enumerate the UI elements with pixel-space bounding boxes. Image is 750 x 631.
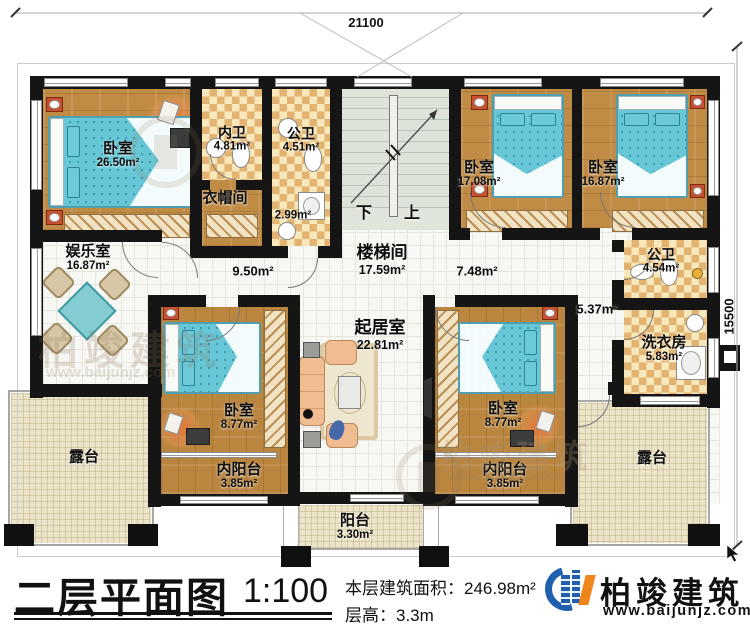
stair-rail [389, 95, 398, 217]
bed [616, 94, 688, 198]
stair-up-label: 上 [404, 205, 420, 223]
nightstand [46, 97, 63, 112]
window [44, 78, 128, 87]
room-label-balcony: 阳台 3.30m² [337, 512, 373, 542]
window [275, 78, 327, 87]
armchair [325, 340, 357, 365]
window [600, 78, 684, 87]
wall [30, 230, 162, 242]
room-label-terrace-left: 露台 [69, 448, 99, 465]
end-table [303, 342, 320, 358]
wall [565, 382, 578, 395]
room-label-public-bath-right: 公卫 4.54m² [643, 246, 679, 275]
pier [4, 524, 34, 546]
hall-right-area: 7.48m² [456, 265, 497, 280]
bed [458, 322, 556, 394]
wall [30, 384, 162, 397]
bed [492, 94, 564, 198]
inner-balcony-window-right [435, 452, 557, 458]
room-label-inner-balcony-left: 内阳台 3.85m² [216, 461, 261, 491]
wall [502, 228, 579, 240]
drawing-scale: 1:100 [243, 572, 328, 611]
hall-left-area: 9.50m² [232, 265, 273, 280]
sink [278, 222, 296, 240]
tv [186, 428, 210, 445]
hall-small-area: 5.37m² [576, 303, 617, 318]
wall [624, 298, 720, 310]
camera-tripod-icon [170, 128, 190, 148]
terrace-left-parapet [8, 390, 154, 546]
sink [686, 314, 704, 332]
pier [128, 524, 158, 546]
pier [556, 524, 588, 546]
logo-building-bar [561, 575, 570, 605]
wall [318, 246, 342, 258]
area-label-cloakroom: 2.99m² [275, 209, 311, 222]
room-label-bedroom-bl: 卧室 8.77m² [221, 402, 257, 432]
wall [612, 240, 624, 252]
window [354, 78, 412, 87]
nightstand [690, 184, 705, 198]
end-table [303, 431, 321, 448]
pier [688, 524, 720, 546]
nightstand [46, 210, 63, 225]
floor-height-line: 层高：3.3m [345, 601, 434, 626]
brand-logo-icon [545, 563, 599, 619]
floor-height-value: 3.3m [396, 606, 434, 625]
nightstand [163, 306, 179, 320]
flue-hole [724, 351, 736, 363]
brand-website[interactable]: www.baijunjz.com [603, 603, 750, 619]
wall [190, 246, 288, 258]
wall [579, 228, 600, 240]
floor-drain [692, 268, 703, 279]
nightstand [542, 306, 558, 320]
closet [206, 214, 258, 238]
floor-height-label: 层高： [345, 606, 396, 625]
room-label-terrace-right: 露台 [637, 449, 667, 466]
wall [161, 295, 206, 307]
nightstand [471, 95, 488, 110]
room-label-bedroom-tr: 卧室 16.87m² [582, 159, 625, 189]
window [215, 78, 259, 87]
floor-area-line: 本层建筑面积：246.98m² [345, 574, 536, 599]
window [180, 496, 268, 504]
window [708, 338, 719, 378]
wall [455, 295, 565, 307]
room-label-bedroom-br: 卧室 8.77m² [485, 400, 521, 430]
room-label-stairwell: 楼梯间 17.59m² [357, 243, 408, 277]
title-underline [14, 618, 332, 620]
room-label-laundry: 洗衣房 5.83m² [641, 334, 686, 364]
wall [572, 89, 582, 240]
wall [262, 89, 272, 258]
room-label-living: 起居室 22.81m² [355, 318, 406, 352]
stool [303, 409, 313, 419]
wall [148, 295, 161, 507]
wall [632, 228, 720, 240]
tv [510, 430, 534, 447]
stair-down-label: 下 [356, 205, 372, 223]
floor-plan-page: 卧室 26.50m² 内卫 4.81m² 公卫 4.51m² 衣帽间 2.99m… [0, 0, 750, 631]
room-label-bedroom-tl: 卧室 26.50m² [97, 140, 140, 170]
wall [190, 89, 202, 258]
window [455, 496, 539, 504]
dimension-right-value: 15500 [722, 292, 737, 342]
nightstand [690, 95, 705, 109]
pier [419, 546, 449, 567]
mouse-cursor [726, 544, 742, 564]
window [640, 396, 700, 405]
window [708, 100, 719, 196]
window [464, 78, 542, 87]
coffee-table [338, 376, 361, 409]
pier [281, 546, 311, 567]
closet [264, 310, 286, 448]
wall-tv [424, 377, 432, 419]
room-label-bedroom-tc: 卧室 17.08m² [458, 159, 501, 189]
balcony-edge [299, 548, 423, 550]
wall [330, 89, 342, 258]
inner-balcony-window-left [161, 452, 277, 458]
dimension-top-value: 21100 [336, 15, 396, 30]
wall [608, 382, 622, 395]
window [31, 248, 42, 336]
room-label-inner-balcony-right: 内阳台 3.85m² [482, 461, 527, 491]
drawing-title: 二层平面图 [14, 564, 229, 624]
title-underline [14, 612, 332, 615]
window [165, 78, 191, 87]
window [31, 100, 42, 190]
floor-area-label: 本层建筑面积： [345, 579, 464, 598]
wall [238, 295, 300, 307]
wall [288, 295, 300, 505]
room-label-entertainment: 娱乐室 16.87m² [65, 243, 110, 273]
window [708, 247, 719, 293]
floor-area-value: 246.98m² [464, 579, 536, 598]
room-label-cloakroom: 衣帽间 [202, 189, 247, 206]
room-label-inner-bath: 内卫 4.81m² [214, 124, 250, 153]
room-label-public-bath-top: 公卫 4.51m² [283, 125, 319, 154]
wall [565, 295, 578, 507]
window [350, 494, 404, 502]
